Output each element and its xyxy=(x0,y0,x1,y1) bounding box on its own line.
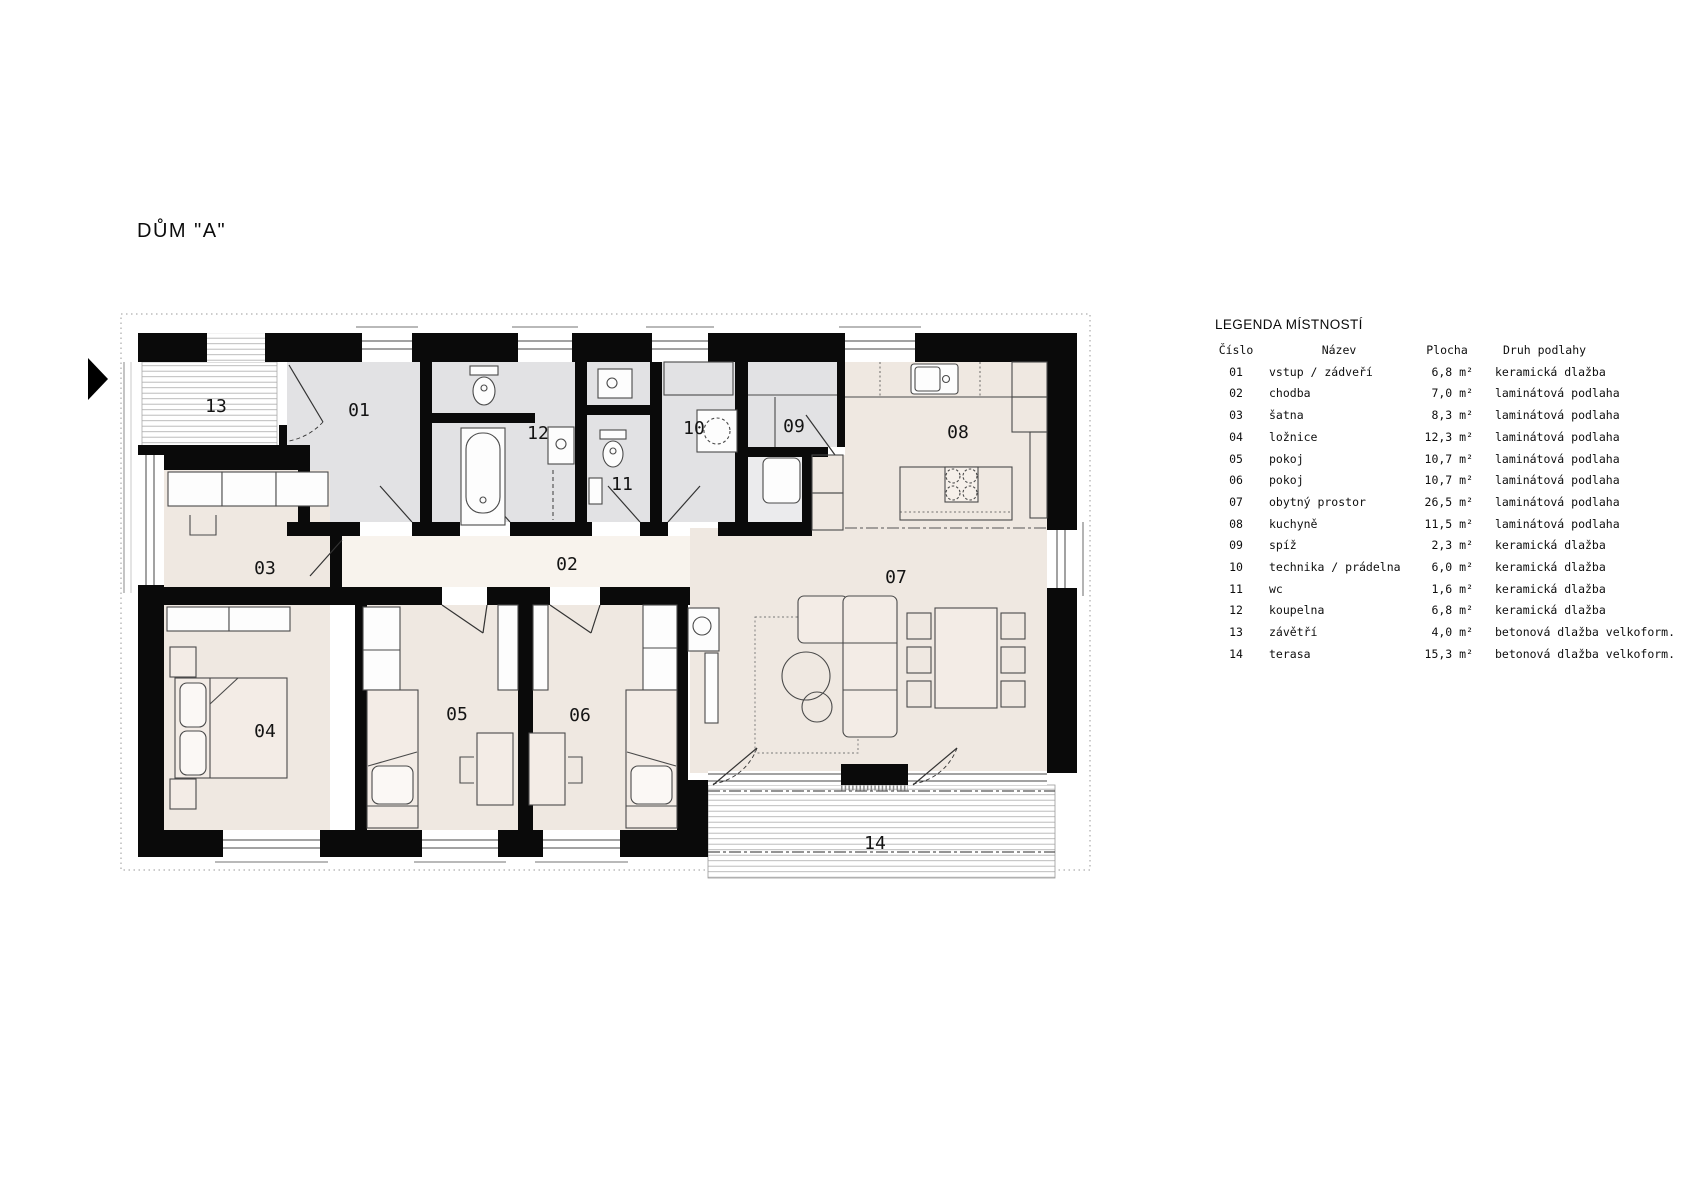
room-name: šatna xyxy=(1269,405,1409,427)
room-name: obytný prostor xyxy=(1269,492,1409,514)
room-label-01: 01 xyxy=(348,400,370,421)
legend-row: 11wc1,6 m²keramická dlažba xyxy=(1215,579,1675,601)
room-floor-type: betonová dlažba velkoform. xyxy=(1485,622,1675,644)
room-number: 14 xyxy=(1215,644,1257,666)
room-area: 11,5 m² xyxy=(1421,514,1473,536)
room-floor-type: laminátová podlaha xyxy=(1485,383,1675,405)
room-name: terasa xyxy=(1269,644,1409,666)
room-area: 1,6 m² xyxy=(1421,579,1473,601)
legend-row: 05pokoj10,7 m²laminátová podlaha xyxy=(1215,449,1675,471)
wardrobe-05-icon xyxy=(363,607,400,690)
room-floor-type: laminátová podlaha xyxy=(1485,449,1675,471)
legend-row: 12koupelna6,8 m²keramická dlažba xyxy=(1215,600,1675,622)
room-floor-type: laminátová podlaha xyxy=(1485,470,1675,492)
legend-row: 14terasa15,3 m²betonová dlažba velkoform… xyxy=(1215,644,1675,666)
room-name: spíž xyxy=(1269,535,1409,557)
room-number: 06 xyxy=(1215,470,1257,492)
room-floor-type: keramická dlažba xyxy=(1485,362,1675,384)
room-number: 03 xyxy=(1215,405,1257,427)
room-floor-type: betonová dlažba velkoform. xyxy=(1485,644,1675,666)
room-floor-type: keramická dlažba xyxy=(1485,535,1675,557)
kitchen-sink-icon xyxy=(911,364,958,394)
room-number: 13 xyxy=(1215,622,1257,644)
room-area: 12,3 m² xyxy=(1421,427,1473,449)
fridge-icon xyxy=(763,458,800,503)
legend: LEGENDA MÍSTNOSTÍ Číslo Název Plocha Dru… xyxy=(1215,317,1675,666)
room-floor-type: laminátová podlaha xyxy=(1485,492,1675,514)
page: DŮM "A" xyxy=(0,0,1685,1188)
room-label-05: 05 xyxy=(446,704,468,725)
room-floor-type: keramická dlažba xyxy=(1485,579,1675,601)
legend-heading: LEGENDA MÍSTNOSTÍ xyxy=(1215,317,1675,332)
legend-row: 08kuchyně11,5 m²laminátová podlaha xyxy=(1215,514,1675,536)
room-label-03: 03 xyxy=(254,558,276,579)
window-top-12 xyxy=(512,327,578,362)
legend-row: 10technika / prádelna6,0 m²keramická dla… xyxy=(1215,557,1675,579)
room-name: wc xyxy=(1269,579,1409,601)
room-name: chodba xyxy=(1269,383,1409,405)
room-area: 6,8 m² xyxy=(1421,362,1473,384)
window-top-08 xyxy=(839,327,921,362)
room-floor-type: laminátová podlaha xyxy=(1485,405,1675,427)
room-area: 8,3 m² xyxy=(1421,405,1473,427)
room-number: 12 xyxy=(1215,600,1257,622)
legend-row: 09spíž2,3 m²keramická dlažba xyxy=(1215,535,1675,557)
legend-col-name: Název xyxy=(1269,340,1409,362)
room-area: 6,0 m² xyxy=(1421,557,1473,579)
window-top-10 xyxy=(646,327,714,362)
legend-row: 07obytný prostor26,5 m²laminátová podlah… xyxy=(1215,492,1675,514)
legend-header-row: Číslo Název Plocha Druh podlahy xyxy=(1215,340,1675,362)
room-label-12: 12 xyxy=(527,423,549,444)
terrace-area xyxy=(708,785,1055,878)
room-label-09: 09 xyxy=(783,416,805,437)
room-number: 11 xyxy=(1215,579,1257,601)
room-number: 01 xyxy=(1215,362,1257,384)
room-area: 10,7 m² xyxy=(1421,449,1473,471)
legend-col-number: Číslo xyxy=(1215,340,1257,362)
room-area: 26,5 m² xyxy=(1421,492,1473,514)
room-label-04: 04 xyxy=(254,721,276,742)
wardrobe-06-icon xyxy=(643,605,677,690)
room-number: 10 xyxy=(1215,557,1257,579)
window-left-03 xyxy=(138,455,164,585)
window-top-01 xyxy=(356,327,418,362)
room-label-02: 02 xyxy=(556,554,578,575)
room-name: kuchyně xyxy=(1269,514,1409,536)
room-area: 10,7 m² xyxy=(1421,470,1473,492)
wardrobe-03-icon xyxy=(168,472,328,506)
legend-row: 04ložnice12,3 m²laminátová podlaha xyxy=(1215,427,1675,449)
room-area: 2,3 m² xyxy=(1421,535,1473,557)
room-name: koupelna xyxy=(1269,600,1409,622)
room-area: 15,3 m² xyxy=(1421,644,1473,666)
nightstand-icon xyxy=(170,779,196,809)
cooktop-icon xyxy=(945,467,978,502)
sink-12-icon xyxy=(548,427,574,464)
basin-11-icon xyxy=(589,478,602,504)
bathtub-icon xyxy=(461,428,505,525)
room-floor-type: laminátová podlaha xyxy=(1485,514,1675,536)
room-area: 7,0 m² xyxy=(1421,383,1473,405)
room-name: závětří xyxy=(1269,622,1409,644)
room-label-14: 14 xyxy=(864,833,886,854)
room-floor-type: keramická dlažba xyxy=(1485,557,1675,579)
room-number: 07 xyxy=(1215,492,1257,514)
room-floor-type: laminátová podlaha xyxy=(1485,427,1675,449)
wardrobe-04-icon xyxy=(167,607,290,631)
legend-table: Číslo Název Plocha Druh podlahy 01vstup … xyxy=(1215,340,1675,666)
window-bottom-04 xyxy=(215,830,328,862)
room-number: 08 xyxy=(1215,514,1257,536)
legend-row: 01vstup / zádveří6,8 m²keramická dlažba xyxy=(1215,362,1675,384)
window-bottom-05 xyxy=(414,830,506,862)
entrance-marker-icon xyxy=(88,358,108,400)
room-floor-type: keramická dlažba xyxy=(1485,600,1675,622)
room-label-08: 08 xyxy=(947,422,969,443)
legend-col-floor: Druh podlahy xyxy=(1485,340,1675,362)
legend-row: 06pokoj10,7 m²laminátová podlaha xyxy=(1215,470,1675,492)
window-bottom-06 xyxy=(535,830,628,862)
room-number: 05 xyxy=(1215,449,1257,471)
room-number: 04 xyxy=(1215,427,1257,449)
shelf-07 xyxy=(705,653,718,723)
room-name: technika / prádelna xyxy=(1269,557,1409,579)
cabinet-06-icon xyxy=(533,605,548,690)
room-area: 6,8 m² xyxy=(1421,600,1473,622)
bed-06-icon xyxy=(626,690,677,828)
room-name: pokoj xyxy=(1269,470,1409,492)
stove-icon xyxy=(688,608,719,651)
bed-05-icon xyxy=(367,690,418,828)
room-label-10: 10 xyxy=(683,418,705,439)
legend-row: 02chodba7,0 m²laminátová podlaha xyxy=(1215,383,1675,405)
room-label-13: 13 xyxy=(205,396,227,417)
cabinet-05-icon xyxy=(498,605,518,690)
room-label-06: 06 xyxy=(569,705,591,726)
room-name: ložnice xyxy=(1269,427,1409,449)
nightstand-icon xyxy=(170,647,196,677)
room-name: pokoj xyxy=(1269,449,1409,471)
room-label-11: 11 xyxy=(611,474,633,495)
room-label-07: 07 xyxy=(885,567,907,588)
room-number: 02 xyxy=(1215,383,1257,405)
room-area: 4,0 m² xyxy=(1421,622,1473,644)
legend-row: 13závětří4,0 m²betonová dlažba velkoform… xyxy=(1215,622,1675,644)
legend-row: 03šatna8,3 m²laminátová podlaha xyxy=(1215,405,1675,427)
basin-niche-icon xyxy=(598,369,632,398)
room-name: vstup / zádveří xyxy=(1269,362,1409,384)
legend-col-area: Plocha xyxy=(1421,340,1473,362)
window-right-07 xyxy=(1047,522,1083,596)
room-number: 09 xyxy=(1215,535,1257,557)
